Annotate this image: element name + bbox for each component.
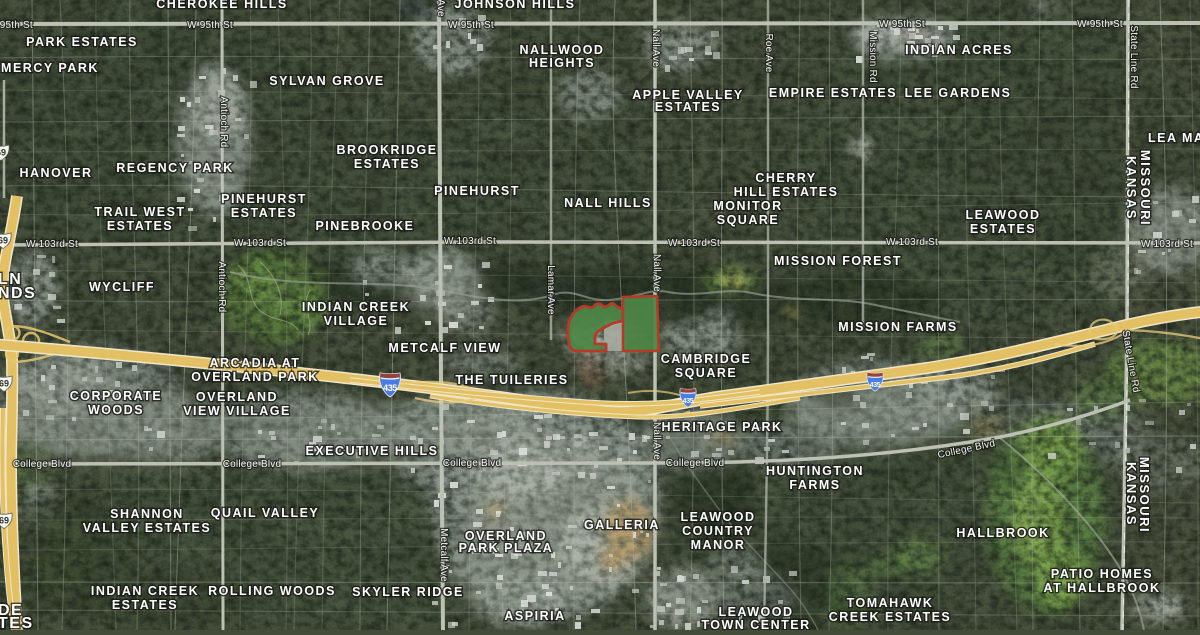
svg-text:NALL HILLS: NALL HILLS [564,196,652,210]
svg-text:MONITOR: MONITOR [713,199,782,213]
svg-text:ROLLING WOODS: ROLLING WOODS [208,584,336,598]
svg-text:MISSION FOREST: MISSION FOREST [774,254,902,268]
svg-text:PARK PLAZA: PARK PLAZA [459,541,554,555]
svg-text:Mission Rd: Mission Rd [867,31,878,82]
svg-text:Ave: Ave [435,0,446,17]
svg-text:HEIGHTS: HEIGHTS [529,56,595,70]
svg-text:W 103rd St: W 103rd St [26,239,78,250]
svg-text:AT HALLBROOK: AT HALLBROOK [1043,581,1160,595]
svg-text:CHERRY: CHERRY [755,171,816,185]
svg-text:W 95th St: W 95th St [1077,19,1123,30]
svg-text:THE TUILERIES: THE TUILERIES [455,373,568,387]
svg-text:W 95th St: W 95th St [879,19,925,30]
svg-text:69: 69 [0,148,6,158]
svg-text:NDS: NDS [0,285,36,302]
svg-text:MANOR: MANOR [691,538,746,552]
svg-text:OVERLAND PARK: OVERLAND PARK [191,370,319,384]
svg-text:VIEW VILLAGE: VIEW VILLAGE [183,404,291,418]
svg-text:TOMAHAWK: TOMAHAWK [847,596,934,610]
svg-text:VILLAGE: VILLAGE [324,314,389,328]
svg-text:METCALF VIEW: METCALF VIEW [388,341,501,355]
svg-text:SHANNON: SHANNON [110,507,184,521]
svg-text:LEA MA: LEA MA [1148,131,1200,145]
svg-text:NALLWOOD: NALLWOOD [520,43,605,57]
svg-text:Roe Ave: Roe Ave [763,33,774,72]
svg-text:Nall Ave: Nall Ave [651,254,662,292]
svg-text:College Blvd: College Blvd [443,458,502,469]
svg-text:Lamar Ave: Lamar Ave [545,265,556,315]
svg-text:HALLBROOK: HALLBROOK [956,526,1049,540]
svg-text:CORPORATE: CORPORATE [70,389,162,403]
svg-text:College Blvd: College Blvd [13,459,72,470]
svg-text:SQUARE: SQUARE [675,366,737,380]
svg-text:ESTATES: ESTATES [354,157,420,171]
svg-text:ESTATES: ESTATES [112,598,178,612]
svg-text:OVERLAND: OVERLAND [196,390,278,404]
svg-text:LEE GARDENS: LEE GARDENS [905,86,1012,100]
svg-text:ESTATES: ESTATES [107,219,173,233]
svg-text:PARK ESTATES: PARK ESTATES [26,35,138,49]
svg-text:TRAIL WEST: TRAIL WEST [94,205,185,219]
svg-text:FARMS: FARMS [789,478,840,492]
svg-text:LEAWOOD: LEAWOOD [718,605,793,619]
svg-text:Metcalf Ave: Metcalf Ave [438,528,449,582]
svg-text:Nall Ave: Nall Ave [651,422,662,460]
svg-text:BROOKRIDGE: BROOKRIDGE [336,143,437,157]
svg-text:PATIO HOMES: PATIO HOMES [1051,567,1153,581]
svg-text:QUAIL VALLEY: QUAIL VALLEY [211,506,320,520]
svg-text:LEAWOOD: LEAWOOD [680,510,755,524]
svg-text:PINEHURST: PINEHURST [221,192,307,206]
svg-text:MISSOURI: MISSOURI [1138,150,1153,226]
svg-text:WYCLIFF: WYCLIFF [89,280,155,294]
svg-text:ARCADIA AT: ARCADIA AT [210,356,301,370]
svg-text:WOODS: WOODS [88,403,144,417]
svg-text:ESTATES: ESTATES [231,206,297,220]
svg-text:69: 69 [0,379,9,389]
svg-text:CHEROKEE HILLS: CHEROKEE HILLS [156,0,287,11]
svg-text:College Blvd: College Blvd [223,459,282,470]
svg-text:ASPIRIA: ASPIRIA [504,609,565,623]
svg-text:435: 435 [870,382,881,389]
svg-text:W 103rd St: W 103rd St [886,237,938,248]
svg-text:LEAWOOD: LEAWOOD [965,208,1040,222]
svg-text:State Line Rd: State Line Rd [1128,25,1139,88]
svg-text:MERCY PARK: MERCY PARK [1,61,99,75]
svg-text:KANSAS: KANSAS [1124,462,1139,526]
svg-text:435: 435 [683,398,694,405]
svg-text:W 95th St: W 95th St [187,20,233,31]
svg-text:W 103rd St: W 103rd St [444,236,496,247]
svg-text:PINEBROOKE: PINEBROOKE [315,219,414,233]
svg-text:REGENCY PARK: REGENCY PARK [116,161,234,175]
svg-text:College Blvd: College Blvd [666,458,725,469]
svg-text:PINEHURST: PINEHURST [434,184,520,198]
svg-text:W 103rd St: W 103rd St [668,238,720,249]
svg-text:INDIAN CREEK: INDIAN CREEK [302,300,410,314]
svg-text:ESTATES: ESTATES [970,222,1036,236]
svg-text:TOWN CENTER: TOWN CENTER [701,618,810,630]
svg-text:Nall Ave: Nall Ave [650,29,661,67]
svg-text:SKYLER RIDGE: SKYLER RIDGE [352,585,464,599]
svg-text:W 95th St: W 95th St [0,20,33,31]
svg-text:TES: TES [0,615,34,630]
svg-text:EXECUTIVE HILLS: EXECUTIVE HILLS [306,444,439,458]
svg-text:MISSION FARMS: MISSION FARMS [838,320,958,334]
svg-text:Antioch Rd: Antioch Rd [216,262,227,313]
svg-text:INDIAN CREEK: INDIAN CREEK [91,584,199,598]
svg-text:69: 69 [0,516,9,526]
svg-text:435: 435 [383,383,397,393]
svg-text:HERITAGE PARK: HERITAGE PARK [661,420,782,434]
svg-text:ESTATES: ESTATES [655,100,721,114]
svg-text:COUNTRY: COUNTRY [682,524,754,538]
svg-text:SQUARE: SQUARE [717,213,779,227]
svg-text:Antioch Rd: Antioch Rd [218,97,229,148]
svg-text:SYLVAN GROVE: SYLVAN GROVE [269,74,384,88]
svg-text:JOHNSON HILLS: JOHNSON HILLS [455,0,576,11]
svg-text:CREEK ESTATES: CREEK ESTATES [829,610,952,624]
svg-text:69: 69 [0,236,8,246]
svg-text:CAMBRIDGE: CAMBRIDGE [661,352,752,366]
svg-text:HILL ESTATES: HILL ESTATES [734,185,839,199]
svg-text:KANSAS: KANSAS [1124,156,1139,220]
svg-text:W 103rd St: W 103rd St [1141,239,1193,250]
svg-text:VALLEY ESTATES: VALLEY ESTATES [83,521,211,535]
svg-text:EMPIRE ESTATES: EMPIRE ESTATES [769,86,897,100]
svg-text:INDIAN ACRES: INDIAN ACRES [905,43,1013,57]
svg-text:W 95th St: W 95th St [448,20,494,31]
svg-text:W 103rd St: W 103rd St [234,238,286,249]
svg-text:GALLERIA: GALLERIA [584,518,660,532]
svg-text:HUNTINGTON: HUNTINGTON [766,464,864,478]
svg-text:HANOVER: HANOVER [19,166,92,180]
